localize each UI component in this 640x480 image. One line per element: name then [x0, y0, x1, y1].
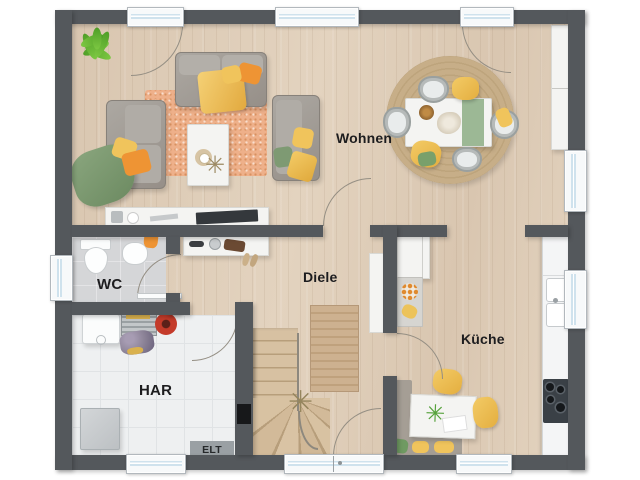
label-kueche: Küche	[461, 331, 505, 347]
washer-door	[96, 335, 106, 345]
wall-living-south-3	[525, 225, 568, 237]
wall-kitchen-west-lower	[383, 376, 397, 455]
window-bottom-har	[126, 454, 186, 474]
glass	[57, 259, 62, 297]
glass	[571, 274, 576, 325]
door-handle	[338, 461, 342, 465]
decor-bowl	[127, 212, 139, 224]
terrace-door-right	[460, 7, 514, 27]
tv	[196, 209, 259, 224]
dining-chair-gray	[418, 76, 449, 103]
washing-machine	[82, 314, 120, 344]
window-top	[275, 7, 359, 27]
leaf	[93, 28, 102, 50]
burner	[547, 396, 554, 403]
sofa-seat-cushion	[125, 105, 161, 143]
dried-plant: ✳	[205, 151, 225, 180]
table-runner-green	[462, 99, 484, 146]
hose-reel	[155, 313, 177, 335]
window-left-wc	[50, 255, 73, 301]
coffee-table: ✳	[187, 124, 229, 186]
glass	[130, 461, 182, 466]
sunglasses	[189, 241, 204, 247]
papers	[442, 415, 468, 433]
dried-plant-stairs: ✳	[288, 385, 313, 420]
wall-living-south-1	[72, 225, 323, 237]
glass	[279, 14, 355, 19]
wall-har-east	[235, 302, 253, 455]
entrance-door	[284, 454, 384, 474]
bananas	[400, 302, 419, 320]
wall-outer-right	[568, 10, 585, 470]
decor-box	[111, 211, 123, 223]
terrace-door-left	[127, 7, 184, 27]
dining-chair-yellow	[452, 77, 479, 100]
label-elt: ELT	[202, 444, 222, 456]
cabinet-door-line	[422, 234, 423, 278]
bench-cushion-yellow	[434, 441, 454, 453]
window-bottom-kitchen	[456, 454, 512, 474]
burner	[546, 383, 554, 391]
wall-living-south-2	[370, 225, 447, 237]
kitchen-table: ✳	[409, 394, 476, 439]
window-right-kitchen	[564, 270, 587, 329]
fridge-cabinet	[397, 233, 430, 279]
faucet	[553, 298, 558, 303]
dining-chair-gray	[452, 147, 482, 172]
label-wc: WC	[97, 276, 122, 293]
wall-niche	[237, 404, 251, 424]
pillow-yellow	[291, 126, 314, 149]
dining-table	[405, 98, 492, 147]
decor-items	[150, 214, 178, 222]
burner	[556, 403, 565, 412]
watch	[209, 238, 221, 250]
palm-plant	[70, 24, 122, 78]
nut-bowl	[419, 105, 434, 120]
glass	[131, 14, 180, 19]
wall-kitchen-west-upper	[383, 225, 397, 333]
bench-cushion-yellow	[412, 441, 429, 453]
burner	[557, 386, 564, 393]
kitchen-chair-yellow	[471, 396, 499, 429]
glass	[571, 154, 576, 208]
fruit-bowl	[401, 283, 418, 300]
wall-outer-left	[55, 10, 72, 470]
glass	[460, 461, 508, 466]
window-right-dining	[564, 150, 587, 212]
glass	[464, 14, 510, 19]
wall-wc-east-upper	[166, 237, 180, 254]
clutch-bag	[223, 239, 245, 253]
label-diele: Diele	[303, 269, 337, 285]
hallway-sideboard	[183, 234, 269, 256]
cabinet-divider	[552, 88, 569, 89]
door-divider	[333, 456, 334, 472]
wall-wc-south	[72, 302, 190, 315]
floor-plan: ✳ ELT ✳	[0, 0, 640, 480]
hallway-runner-mat	[310, 305, 359, 392]
label-har: HAR	[139, 382, 172, 399]
kitchen-side-counter	[397, 277, 423, 327]
flower-decor	[437, 112, 461, 134]
glass	[288, 461, 380, 466]
label-wohnen: Wohnen	[336, 130, 392, 146]
freezer-box	[80, 408, 120, 450]
cooktop	[543, 379, 569, 423]
towel-yellow	[126, 315, 150, 319]
